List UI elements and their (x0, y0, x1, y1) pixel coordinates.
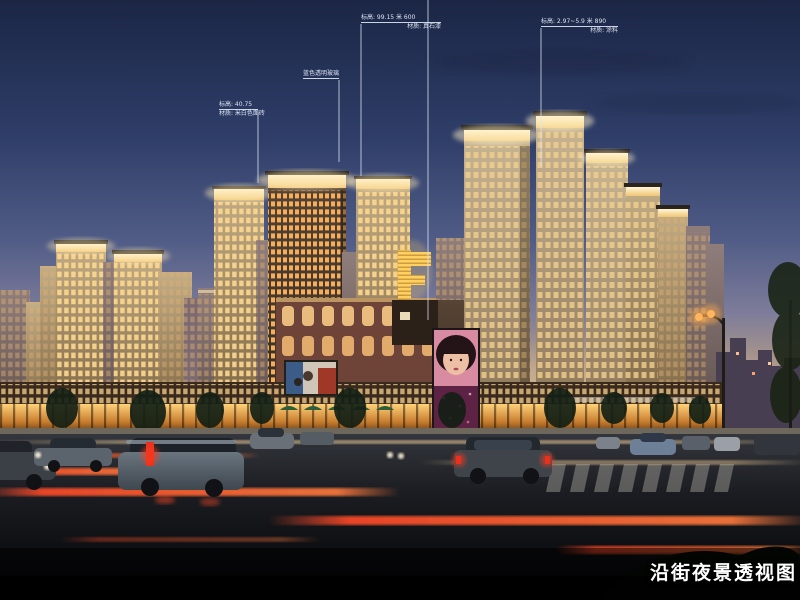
callout-b-line1: 蓝色透明玻璃 (303, 70, 339, 79)
callout-d-line1: 标高: 2.97~5.9 米 890 (541, 18, 618, 27)
suv-dark (452, 437, 554, 484)
callout-a: 标高: 40.75 材质: 米白色面砖 (219, 101, 258, 118)
callout-d: 标高: 2.97~5.9 米 890 材质: 涂料 (541, 18, 618, 35)
callout-c-line2: 材质: 真石漆 (361, 23, 441, 31)
image-caption: 沿街夜景透视图 (650, 558, 797, 585)
callout-c: 标高: 99.15 米 600 材质: 真石漆 (361, 14, 441, 31)
tall-tree-right (768, 262, 800, 430)
callout-d-line2: 材质: 涂料 (541, 27, 618, 35)
billboard-left (284, 360, 338, 396)
cloud-wisp (590, 94, 800, 114)
night-street-rendering: 标高: 40.75 材质: 米白色面砖 蓝色透明玻璃 标高: 99.15 米 6… (0, 0, 800, 600)
cloud-wisp (430, 50, 690, 74)
callout-a-line1: 标高: 40.75 (219, 101, 258, 110)
callout-b: 蓝色透明玻璃 (303, 70, 339, 79)
callout-a-line2: 材质: 米白色面砖 (219, 110, 258, 118)
scene-canvas (0, 0, 800, 600)
callout-c-line1: 标高: 99.15 米 600 (361, 14, 441, 23)
